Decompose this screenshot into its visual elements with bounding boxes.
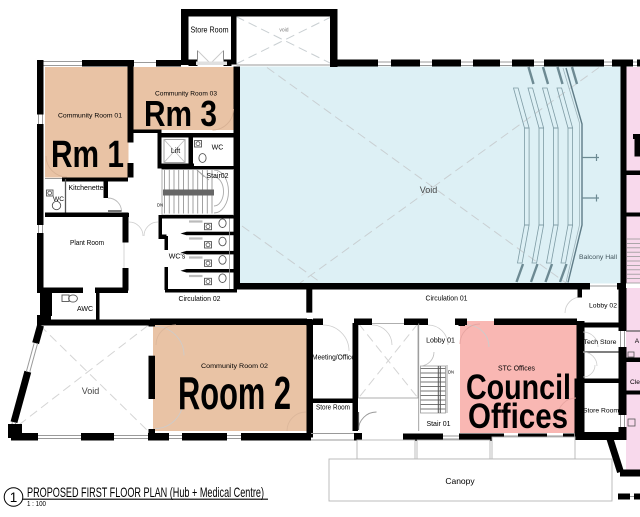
svg-text:Room 2: Room 2: [178, 367, 291, 419]
svg-text:void: void: [279, 28, 288, 34]
svg-text:Meeting/Office: Meeting/Office: [312, 353, 355, 362]
svg-text:WC: WC: [212, 145, 224, 152]
svg-text:Store Room: Store Room: [316, 403, 350, 412]
svg-text:Circulation 02: Circulation 02: [179, 294, 221, 303]
svg-text:1: 1: [10, 490, 18, 505]
svg-text:WC's: WC's: [169, 254, 186, 261]
svg-text:Canopy: Canopy: [445, 476, 475, 486]
svg-text:Stair02: Stair02: [207, 171, 229, 180]
svg-text:Stair 01: Stair 01: [426, 421, 450, 428]
svg-text:Rm 1: Rm 1: [51, 134, 124, 176]
svg-text:Lift: Lift: [171, 148, 180, 155]
svg-text:Lobby 02: Lobby 02: [589, 303, 617, 310]
svg-text:Kitchenette: Kitchenette: [69, 183, 104, 192]
svg-text:DN: DN: [157, 203, 163, 208]
svg-text:Lobby 01: Lobby 01: [426, 338, 455, 345]
svg-text:Circulation 01: Circulation 01: [426, 294, 468, 303]
svg-text:1 : 100: 1 : 100: [27, 499, 46, 508]
svg-text:Balcony Hall: Balcony Hall: [579, 254, 618, 261]
svg-text:Tech Store: Tech Store: [584, 339, 617, 346]
svg-text:A: A: [635, 338, 640, 345]
svg-text:Community Room 01: Community Room 01: [58, 113, 122, 120]
svg-text:Void: Void: [420, 185, 438, 195]
svg-text:Cle: Cle: [630, 379, 640, 386]
svg-text:Plant Room: Plant Room: [70, 238, 104, 247]
svg-text:Store Room: Store Room: [583, 408, 619, 415]
svg-text:Offices: Offices: [468, 397, 568, 436]
svg-text:Void: Void: [82, 386, 100, 396]
svg-text:AWC: AWC: [77, 306, 93, 313]
svg-text:Store Room: Store Room: [191, 26, 229, 35]
svg-text:PROPOSED FIRST FLOOR PLAN (Hub: PROPOSED FIRST FLOOR PLAN (Hub + Medical…: [27, 484, 264, 500]
svg-text:Rm 3: Rm 3: [144, 93, 217, 134]
svg-text:DN: DN: [448, 370, 454, 375]
svg-text:WC: WC: [53, 196, 64, 203]
